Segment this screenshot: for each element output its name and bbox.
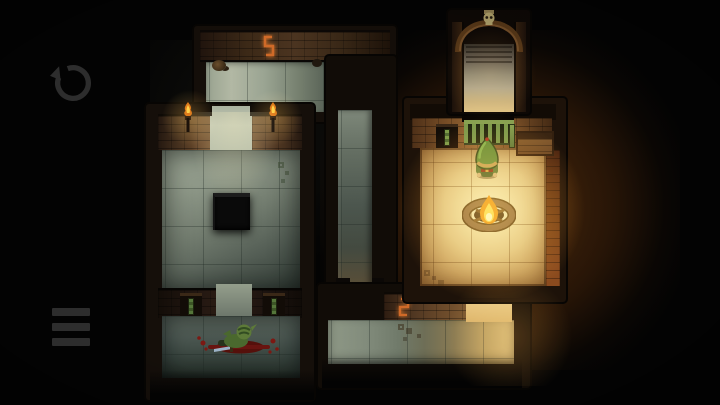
green-banners: [180, 293, 202, 317]
menu-bar: [52, 308, 90, 316]
debris: [312, 59, 322, 67]
undo-arrow-icon: [50, 59, 96, 107]
dirt-specks: [426, 272, 428, 274]
player-character[interactable]: [471, 136, 503, 180]
green-banners: [263, 293, 285, 317]
wall-torch-icon: [180, 100, 196, 136]
undo-button[interactable]: [44, 54, 102, 112]
debris: [212, 60, 226, 71]
menu-bar: [52, 338, 90, 346]
southwest-room-doorway: [216, 284, 252, 318]
rune-marker-icon: [258, 34, 280, 60]
goblin-corpse: [196, 318, 282, 358]
menu-bar: [52, 323, 90, 331]
green-post: [509, 124, 515, 148]
floor-pit: [213, 193, 250, 230]
green-banners: [436, 124, 458, 148]
menu-button[interactable]: [48, 302, 94, 352]
game-viewport[interactable]: [0, 0, 720, 405]
south-corridor-floor: [328, 320, 514, 364]
dirt-specks: [400, 326, 402, 328]
wooden-crate: [516, 131, 554, 156]
campfire[interactable]: [462, 190, 516, 232]
skull-arch-icon: [448, 8, 530, 54]
campfire-room-east-wall: [546, 150, 560, 286]
wall-torch-icon: [265, 100, 281, 136]
moss-specks: [280, 164, 282, 166]
west-room-north-doorway: [210, 106, 252, 154]
